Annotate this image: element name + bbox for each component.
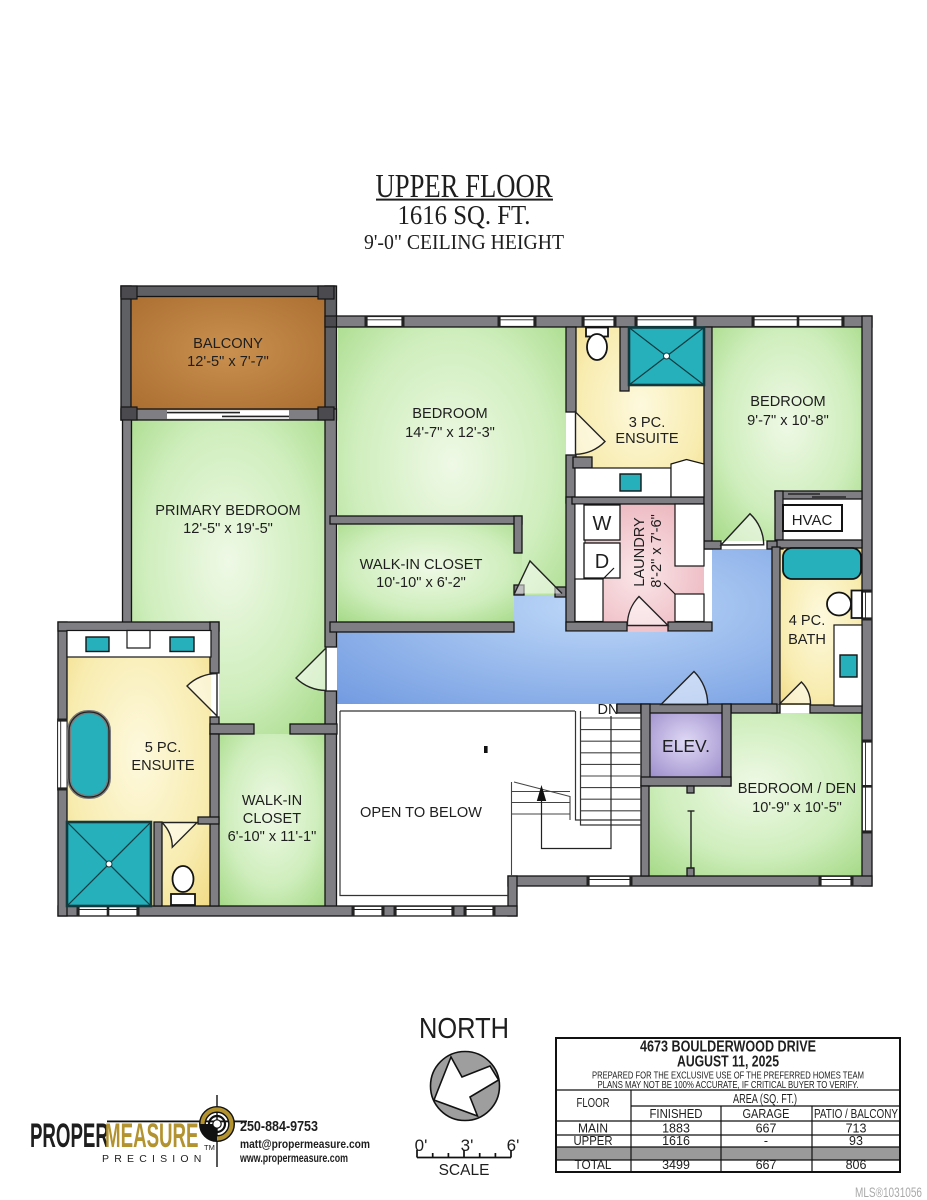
svg-text:9'-7" x 10'-8": 9'-7" x 10'-8" xyxy=(747,413,829,429)
svg-text:1616 SQ. FT.: 1616 SQ. FT. xyxy=(398,200,531,230)
svg-text:PRECISION: PRECISION xyxy=(102,1153,207,1165)
svg-text:PRIMARY BEDROOM: PRIMARY BEDROOM xyxy=(155,503,300,519)
svg-text:12'-5" x 19'-5": 12'-5" x 19'-5" xyxy=(183,521,273,537)
svg-text:UPPER: UPPER xyxy=(574,1134,613,1148)
svg-text:667: 667 xyxy=(756,1158,777,1172)
svg-text:14'-7" x 12'-3": 14'-7" x 12'-3" xyxy=(405,425,495,441)
svg-text:9'-0" CEILING HEIGHT: 9'-0" CEILING HEIGHT xyxy=(364,230,564,254)
svg-text:3': 3' xyxy=(461,1136,474,1155)
svg-text:93: 93 xyxy=(849,1134,863,1148)
svg-text:LAUNDRY: LAUNDRY xyxy=(632,517,648,587)
svg-text:FINISHED: FINISHED xyxy=(650,1107,703,1121)
svg-text:HVAC: HVAC xyxy=(792,512,833,529)
svg-text:FLOOR: FLOOR xyxy=(577,1096,610,1110)
svg-text:NORTH: NORTH xyxy=(419,1013,509,1045)
svg-text:WALK-IN CLOSET: WALK-IN CLOSET xyxy=(360,557,483,573)
svg-text:OPEN TO BELOW: OPEN TO BELOW xyxy=(360,805,482,821)
svg-text:12'-5" x 7'-7": 12'-5" x 7'-7" xyxy=(187,354,269,370)
svg-text:250-884-9753: 250-884-9753 xyxy=(240,1118,318,1135)
svg-text:10'-9" x 10'-5": 10'-9" x 10'-5" xyxy=(752,800,842,816)
svg-text:BEDROOM: BEDROOM xyxy=(750,394,825,410)
svg-text:6'-10" x 11'-1": 6'-10" x 11'-1" xyxy=(228,829,317,845)
svg-text:806: 806 xyxy=(846,1158,867,1172)
svg-text:5 PC.: 5 PC. xyxy=(145,740,182,756)
svg-text:BALCONY: BALCONY xyxy=(193,336,263,352)
svg-text:1616: 1616 xyxy=(662,1134,690,1148)
svg-text:PATIO / BALCONY: PATIO / BALCONY xyxy=(814,1107,899,1121)
svg-text:matt@propermeasure.com: matt@propermeasure.com xyxy=(240,1137,370,1151)
svg-text:GARAGE: GARAGE xyxy=(743,1107,790,1121)
svg-text:D: D xyxy=(595,551,609,573)
svg-text:3499: 3499 xyxy=(662,1158,690,1172)
svg-text:PLANS MAY NOT BE 100% ACCURATE: PLANS MAY NOT BE 100% ACCURATE, IF CRITI… xyxy=(598,1080,859,1091)
svg-text:AREA (SQ. FT.): AREA (SQ. FT.) xyxy=(733,1092,797,1106)
svg-text:CLOSET: CLOSET xyxy=(243,811,301,827)
svg-text:8'-2" x 7'-6": 8'-2" x 7'-6" xyxy=(649,514,665,588)
svg-text:BEDROOM / DEN: BEDROOM / DEN xyxy=(738,781,856,797)
svg-text:BATH: BATH xyxy=(788,632,826,648)
svg-text:-: - xyxy=(764,1134,768,1148)
svg-text:AUGUST 11, 2025: AUGUST 11, 2025 xyxy=(677,1054,779,1071)
svg-text:PROPER: PROPER xyxy=(30,1116,109,1154)
svg-text:TM: TM xyxy=(204,1143,215,1152)
svg-text:3 PC.: 3 PC. xyxy=(629,415,666,431)
svg-text:BEDROOM: BEDROOM xyxy=(412,406,487,422)
svg-text:MLS®1031056: MLS®1031056 xyxy=(855,1185,922,1200)
svg-text:10'-10" x 6'-2": 10'-10" x 6'-2" xyxy=(376,575,466,591)
svg-text:ENSUITE: ENSUITE xyxy=(615,431,679,447)
svg-text:DN: DN xyxy=(598,702,619,718)
svg-text:W: W xyxy=(593,513,612,535)
svg-text:SCALE: SCALE xyxy=(439,1162,490,1179)
svg-text:4 PC.: 4 PC. xyxy=(789,613,826,629)
svg-text:www.propermeasure.com: www.propermeasure.com xyxy=(239,1151,348,1165)
svg-text:WALK-IN: WALK-IN xyxy=(242,793,302,809)
svg-text:ELEV.: ELEV. xyxy=(662,736,710,756)
svg-text:ENSUITE: ENSUITE xyxy=(131,758,195,774)
svg-text:6': 6' xyxy=(507,1136,520,1155)
svg-text:TOTAL: TOTAL xyxy=(575,1158,612,1172)
